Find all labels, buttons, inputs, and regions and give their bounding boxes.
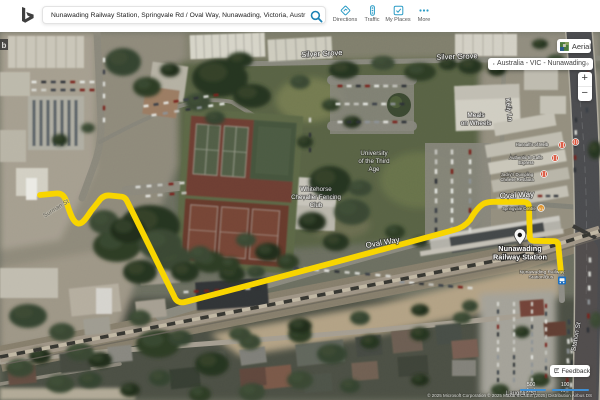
svg-text:on Wheels: on Wheels — [461, 120, 492, 127]
svg-text:Meals: Meals — [467, 112, 485, 119]
svg-text:Express: Express — [518, 160, 533, 165]
svg-text:Hannah's of Melb: Hannah's of Melb — [516, 142, 549, 147]
svg-text:Whitehorse: Whitehorse — [300, 186, 332, 193]
svg-text:Railway Station: Railway Station — [493, 253, 547, 262]
svg-text:Chevalier Fencing: Chevalier Fencing — [291, 194, 341, 201]
svg-text:Station/Bus: Station/Bus — [529, 275, 554, 281]
svg-text:Age: Age — [368, 166, 380, 173]
svg-text:University: University — [360, 150, 388, 157]
svg-text:Silver Grove: Silver Grove — [436, 51, 478, 61]
svg-text:Springvale Centre: Springvale Centre — [502, 206, 536, 211]
svg-text:Club: Club — [310, 202, 323, 209]
svg-text:of the Third: of the Third — [358, 158, 390, 165]
svg-text:b: b — [2, 41, 7, 50]
svg-text:Chinese Restaura: Chinese Restaura — [500, 177, 534, 182]
svg-text:Oval Way: Oval Way — [499, 190, 534, 201]
